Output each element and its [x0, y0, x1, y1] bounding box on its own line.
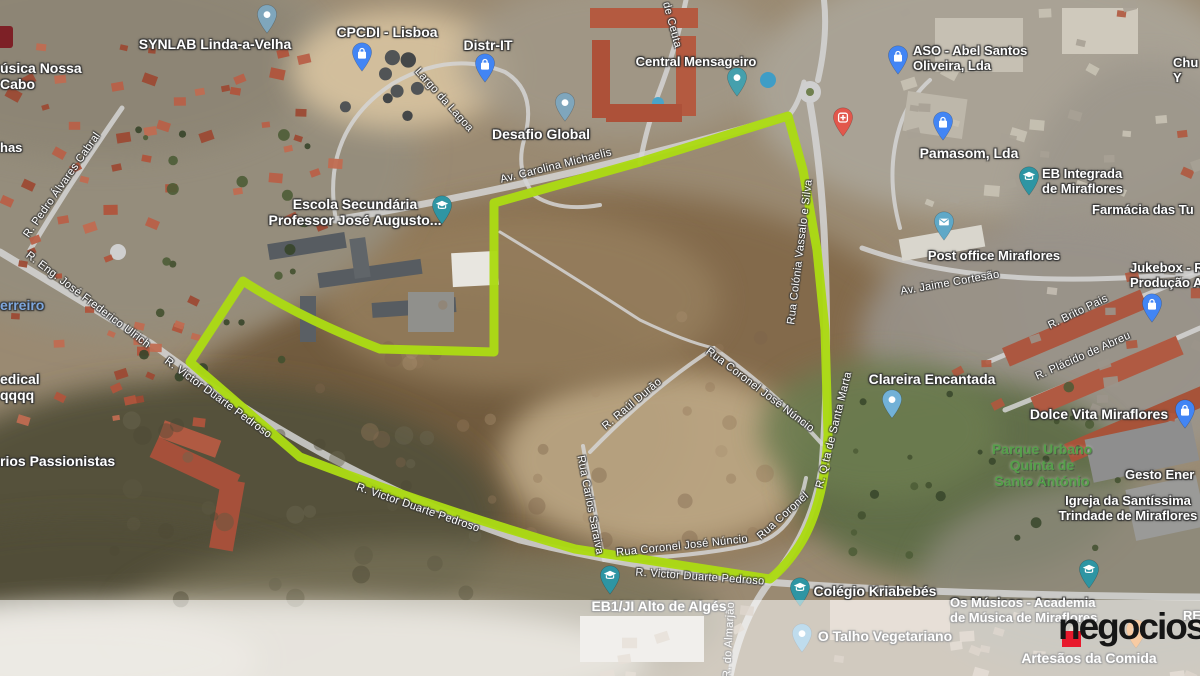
poi-label-has-fragment[interactable]: has	[0, 141, 22, 156]
graduation-cap-pin-icon-escola-pin[interactable]	[431, 195, 453, 225]
place-dot-pin-icon-desafio-pin[interactable]	[554, 92, 576, 122]
shopping-bag-pin-icon-distrit-pin[interactable]	[474, 53, 496, 83]
cutoff-marker-chip	[0, 26, 13, 48]
poi-label-colegio-kriabebes[interactable]: Colégio Kriabebés	[814, 583, 937, 599]
poi-label-jukebox[interactable]: Jukebox - RProdução A	[1130, 261, 1200, 291]
poi-label-igreja[interactable]: Igreja da SantíssimaTrindade de Miraflor…	[1059, 494, 1198, 524]
health-cross-pin-icon-health-pin[interactable]	[832, 107, 854, 137]
poi-label-musica-nossa[interactable]: úsica NossaCabo	[0, 60, 82, 92]
poi-label-farmacia[interactable]: Farmácia das Tu	[1092, 203, 1194, 218]
poi-label-pamasom[interactable]: Pamasom, Lda	[920, 145, 1019, 161]
graduation-cap-pin-icon-eb1ji-pin[interactable]	[599, 565, 621, 595]
shopping-bag-pin-icon-cpcdi-pin[interactable]	[351, 42, 373, 72]
poi-label-synlab[interactable]: SYNLAB Linda-a-Velha	[139, 36, 291, 52]
graduation-cap-pin-icon-eb-integrada-pin[interactable]	[1018, 166, 1040, 196]
poi-label-cpcdi[interactable]: CPCDI - Lisboa	[336, 24, 437, 40]
poi-label-distr-it[interactable]: Distr-IT	[464, 37, 513, 53]
poi-label-passionistas[interactable]: rios Passionistas	[0, 453, 115, 469]
poi-label-chu-fragment[interactable]: ChuY	[1173, 56, 1198, 86]
poi-label-dolce-vita[interactable]: Dolce Vita Miraflores	[1030, 406, 1168, 422]
poi-label-eb-integrada[interactable]: EB Integradade Miraflores	[1042, 167, 1123, 197]
poi-label-parque-urbano[interactable]: Parque UrbanoQuinta deSanto António	[992, 441, 1092, 489]
poi-label-gesto[interactable]: Gesto Ener	[1125, 468, 1194, 483]
place-dot-pin-icon-clareira-pin[interactable]	[881, 389, 903, 419]
poi-label-aso[interactable]: ASO - Abel SantosOliveira, Lda	[913, 44, 1027, 74]
shopping-bag-pin-icon-pamasom-pin[interactable]	[932, 111, 954, 141]
logo-text: negocios	[1058, 608, 1200, 645]
poi-label-erreiro[interactable]: erreiro	[0, 297, 44, 313]
poi-label-clareira[interactable]: Clareira Encantada	[869, 371, 996, 387]
shopping-bag-pin-icon-aso-pin[interactable]	[887, 45, 909, 75]
shopping-bag-pin-icon-jukebox-pin[interactable]	[1141, 293, 1163, 323]
graduation-cap-pin-icon-os-musicos-pin[interactable]	[1078, 559, 1100, 589]
poi-label-medical-fragment[interactable]: edicalqqqq	[0, 371, 40, 403]
poi-label-desafio-global[interactable]: Desafio Global	[492, 126, 590, 142]
poi-label-post-office[interactable]: Post office Miraflores	[928, 249, 1060, 264]
negocios-logo: negocios	[1058, 608, 1200, 650]
place-dot-pin-icon-central-pin[interactable]	[726, 67, 748, 97]
place-dot-pin-icon-synlab-pin[interactable]	[256, 4, 278, 34]
poi-label-escola[interactable]: Escola SecundáriaProfessor José Augusto.…	[269, 196, 442, 228]
envelope-pin-icon-post-office-pin[interactable]	[933, 211, 955, 241]
satellite-map[interactable]: SYNLAB Linda-a-Velhaúsica NossaCaboCPCDI…	[0, 0, 1200, 676]
shopping-bag-pin-icon-dolce-vita-pin[interactable]	[1174, 399, 1196, 429]
watermark-band	[0, 600, 1200, 676]
